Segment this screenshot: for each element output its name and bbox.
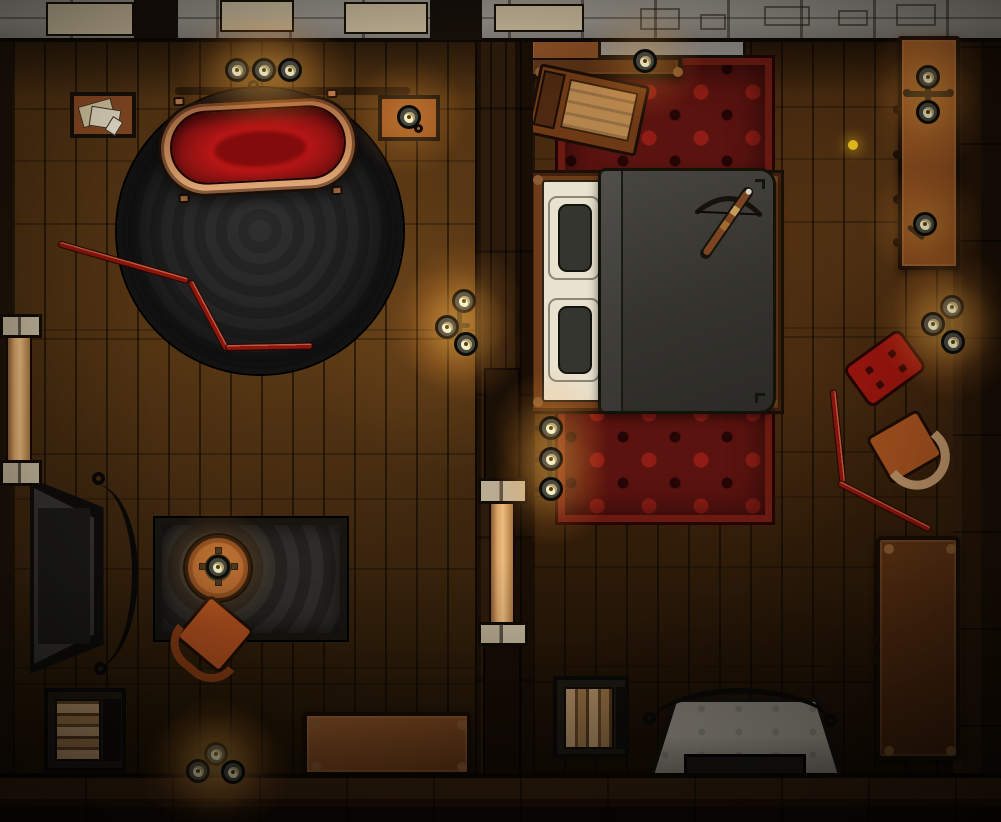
candle-icon[interactable] <box>940 295 964 319</box>
candle-icon[interactable] <box>539 477 563 501</box>
fireplace-left-hearth <box>38 508 90 644</box>
stone-etch <box>640 8 680 30</box>
candle-icon[interactable] <box>278 58 302 82</box>
hub-lug <box>231 563 238 570</box>
table-knob <box>871 636 880 645</box>
stone-etch <box>700 14 726 30</box>
firewood-logs <box>55 699 101 761</box>
pillow[interactable] <box>558 204 592 272</box>
candle-icon[interactable] <box>921 312 945 336</box>
battle-map <box>0 0 1001 822</box>
firewood-box-left[interactable] <box>44 688 126 772</box>
candle-icon[interactable] <box>539 416 563 440</box>
holder-knob <box>903 89 911 97</box>
candle-icon[interactable] <box>633 49 657 73</box>
candle-icon[interactable] <box>452 289 476 313</box>
paper-table[interactable] <box>70 92 136 138</box>
candelabra-scroll <box>248 80 259 91</box>
candle-icon[interactable] <box>913 212 937 236</box>
timber-post <box>6 336 32 462</box>
tub-foot <box>326 89 337 99</box>
tub-foot <box>331 186 342 196</box>
crossbow[interactable] <box>688 182 766 266</box>
south-wall <box>0 773 1001 822</box>
pillow[interactable] <box>558 306 592 374</box>
stone-wall-section <box>598 42 746 58</box>
candle-icon[interactable] <box>252 58 276 82</box>
rivets <box>311 720 321 730</box>
hub-lug <box>199 563 206 570</box>
hub-lug <box>215 547 222 554</box>
firewood-gap <box>103 699 121 761</box>
firewood-gap <box>616 687 628 749</box>
candle-icon[interactable] <box>941 330 965 354</box>
timber-post <box>489 502 515 624</box>
stone-etch <box>896 4 936 26</box>
stone-etch <box>764 6 810 26</box>
hub-lug <box>215 579 222 586</box>
center-wall-beam <box>484 368 520 482</box>
candle-icon[interactable] <box>454 332 478 356</box>
tub-foot <box>178 194 189 204</box>
rivets <box>884 544 894 554</box>
candle-icon[interactable] <box>225 58 249 82</box>
candle-icon[interactable] <box>221 760 245 784</box>
post-stone-cap <box>478 622 528 646</box>
light-marker[interactable] <box>848 140 858 150</box>
stone-gap <box>430 0 482 40</box>
tub-foot <box>173 97 184 107</box>
bench-bottom-left[interactable] <box>303 712 471 776</box>
holder-knob <box>946 89 954 97</box>
center-wall-beam <box>483 644 521 776</box>
table-knob <box>871 654 880 663</box>
stone-block <box>46 2 134 36</box>
firewood-box-right[interactable] <box>553 676 629 758</box>
fender-curl <box>94 662 107 675</box>
fender-curl <box>92 472 105 485</box>
candle-handle-ring <box>414 124 423 133</box>
sideboard-knob <box>893 150 902 159</box>
north-stone-wall <box>0 0 1001 42</box>
candle-icon[interactable] <box>435 315 459 339</box>
long-table[interactable] <box>876 536 960 760</box>
firewood-logs <box>564 687 614 749</box>
stone-block <box>220 0 294 32</box>
stone-block <box>344 2 428 34</box>
stone-gap <box>134 0 178 38</box>
candle-icon[interactable] <box>186 759 210 783</box>
bathtub[interactable] <box>156 93 361 199</box>
sideboard-knob <box>893 105 902 114</box>
candle-icon[interactable] <box>206 555 230 579</box>
fender-curl <box>643 712 656 725</box>
fender-curl <box>824 714 837 727</box>
east-wall <box>953 0 1001 822</box>
candle-icon[interactable] <box>916 100 940 124</box>
post-stone-cap <box>0 314 42 338</box>
stone-etch <box>838 10 868 26</box>
post-stone-cap <box>0 460 42 486</box>
stone-block <box>494 4 584 32</box>
post-stone-cap <box>478 478 528 504</box>
sideboard-knob <box>893 195 902 204</box>
candle-icon[interactable] <box>916 65 940 89</box>
sideboard-knob <box>893 238 902 247</box>
blanket-fold <box>755 393 765 403</box>
candle-icon[interactable] <box>539 447 563 471</box>
